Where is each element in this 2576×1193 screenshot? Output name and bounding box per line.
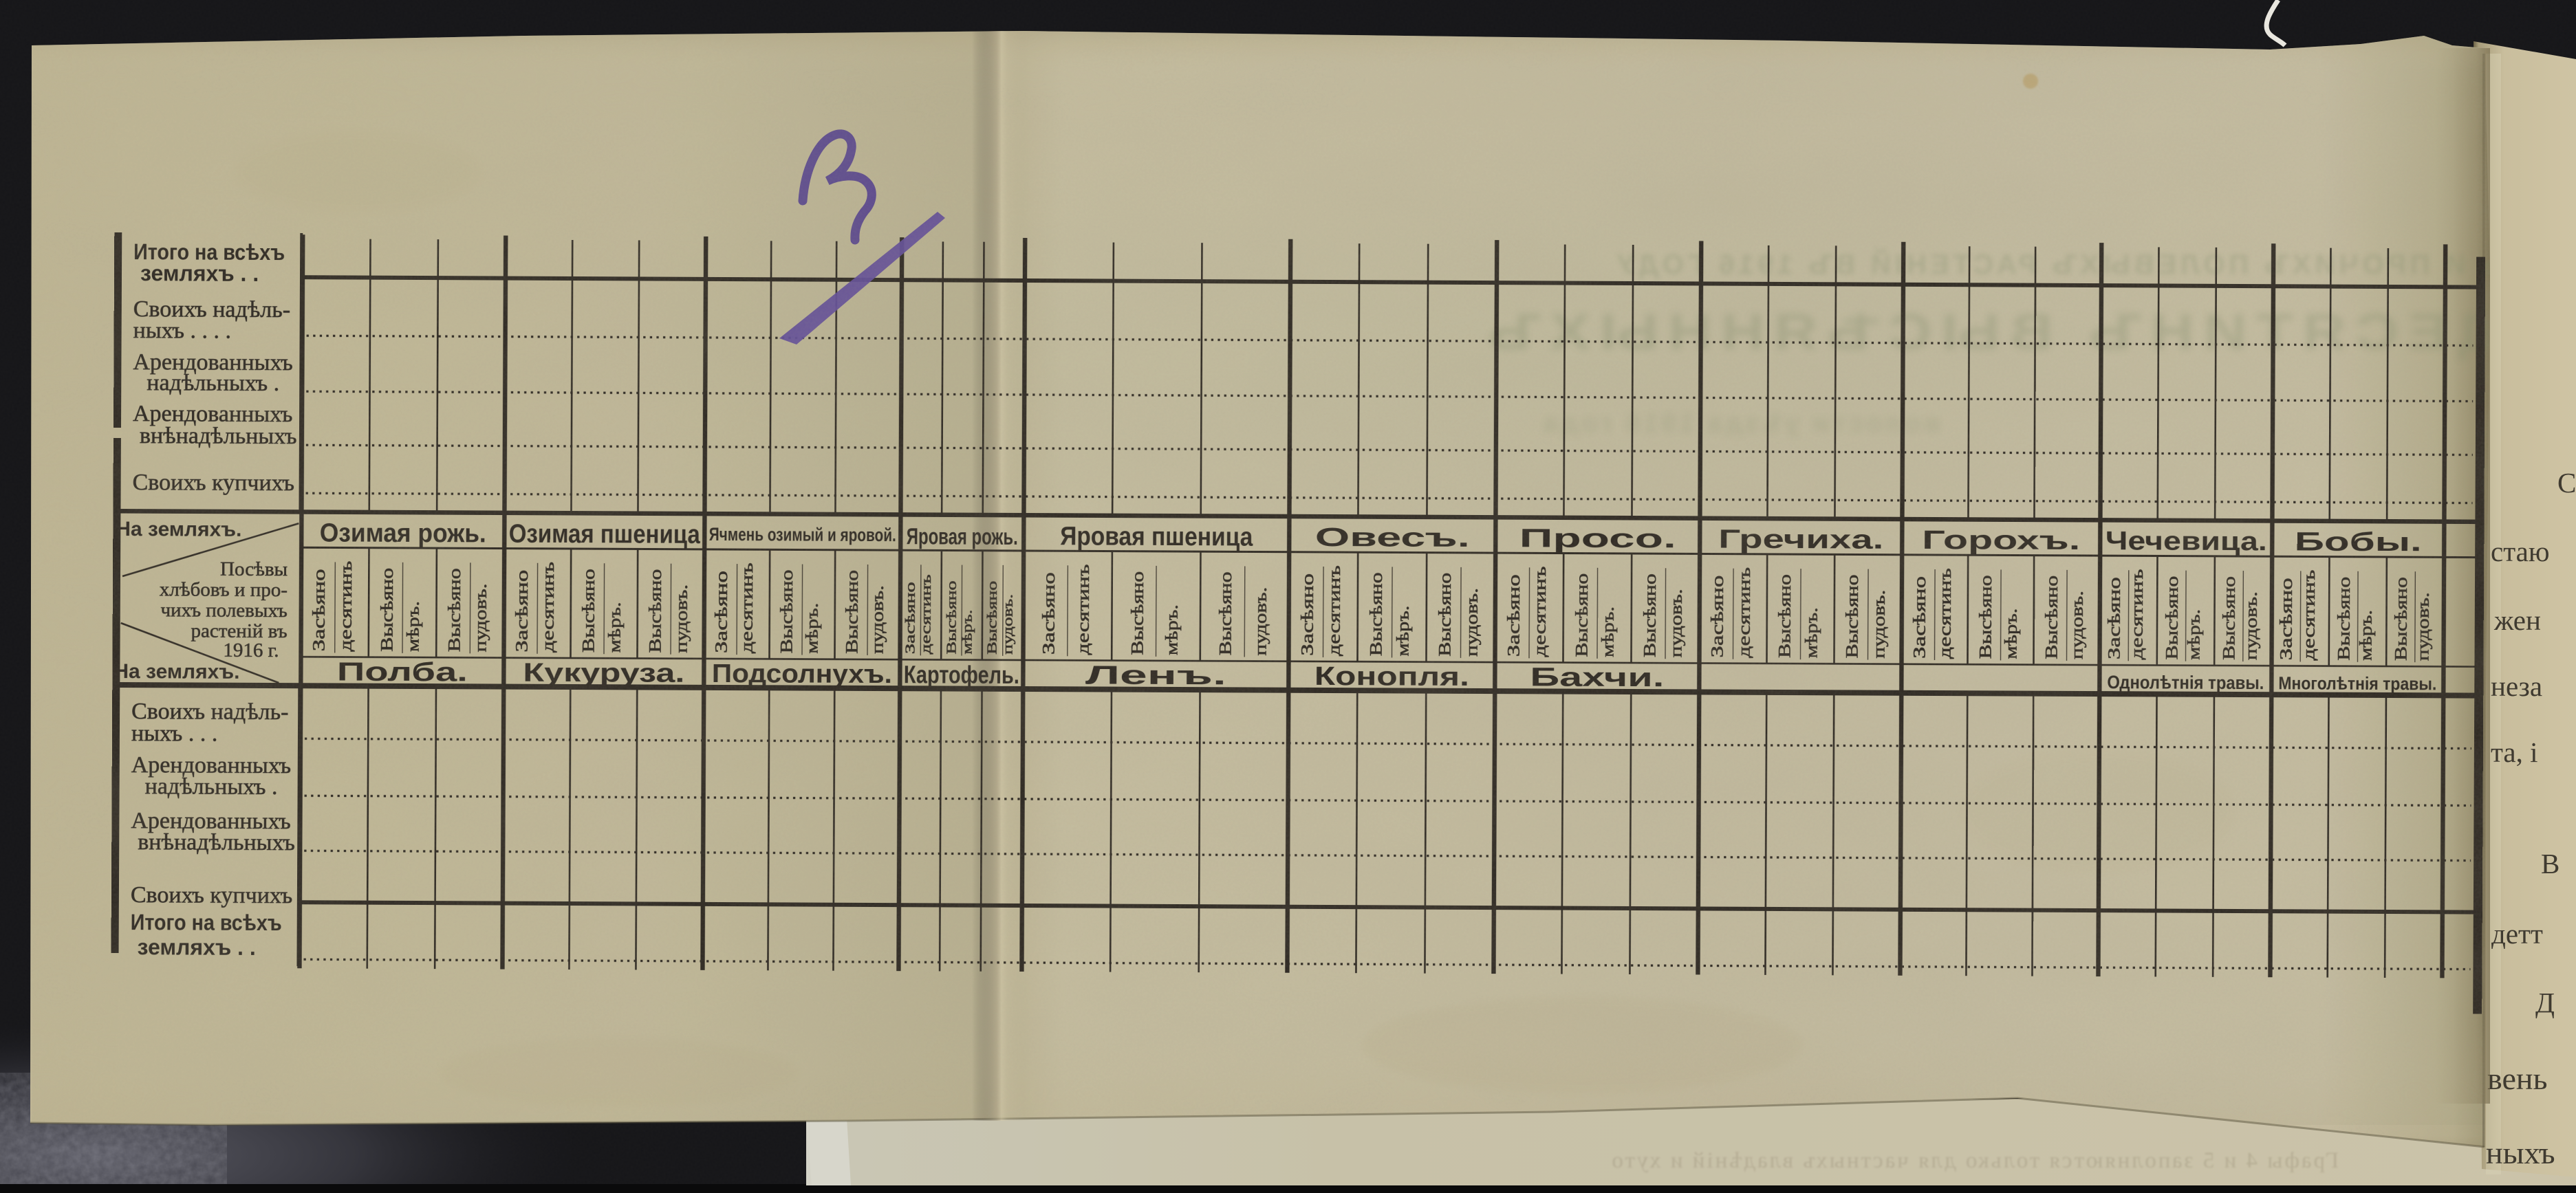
svg-text:та, і: та, і bbox=[2491, 736, 2538, 768]
svg-text:неза: неза bbox=[2491, 670, 2542, 702]
svg-text:стаю: стаю bbox=[2491, 536, 2549, 567]
svg-text:детт: детт bbox=[2491, 918, 2543, 950]
svg-text:вень: вень bbox=[2487, 1061, 2547, 1096]
svg-text:жен: жен bbox=[2493, 604, 2541, 636]
svg-text:ныхъ: ныхъ bbox=[2486, 1135, 2555, 1170]
svg-text:С: С bbox=[2557, 467, 2576, 499]
svg-text:Графы 4 и 5 заполняются только: Графы 4 и 5 заполняются только для частн… bbox=[1610, 1148, 2339, 1173]
svg-text:Д: Д bbox=[2535, 987, 2555, 1018]
svg-text:В: В bbox=[2541, 848, 2559, 879]
